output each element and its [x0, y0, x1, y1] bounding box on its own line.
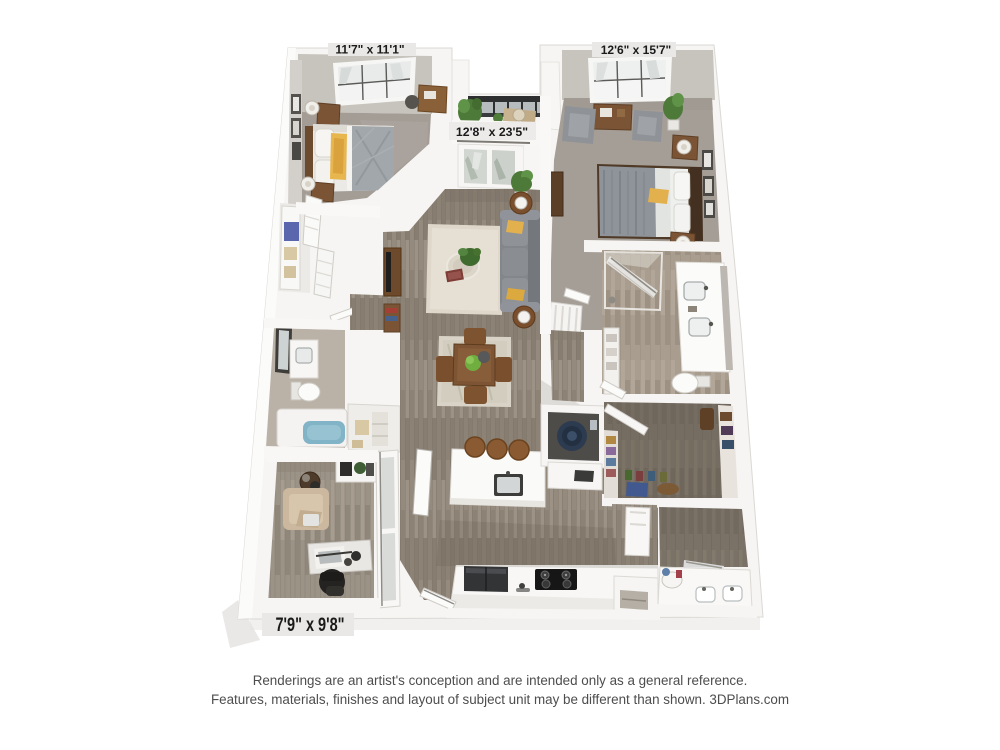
svg-text:11'7" x 11'1": 11'7" x 11'1": [335, 43, 404, 57]
svg-text:12'8" x 23'5": 12'8" x 23'5": [456, 125, 528, 139]
svg-text:Renderings are an artist's con: Renderings are an artist's conception an…: [253, 673, 748, 688]
svg-text:7'9" x 9'8": 7'9" x 9'8": [276, 614, 345, 636]
svg-text:12'6" x 15'7": 12'6" x 15'7": [601, 43, 671, 57]
svg-text:Features, materials, finishes: Features, materials, finishes and layout…: [211, 692, 789, 707]
